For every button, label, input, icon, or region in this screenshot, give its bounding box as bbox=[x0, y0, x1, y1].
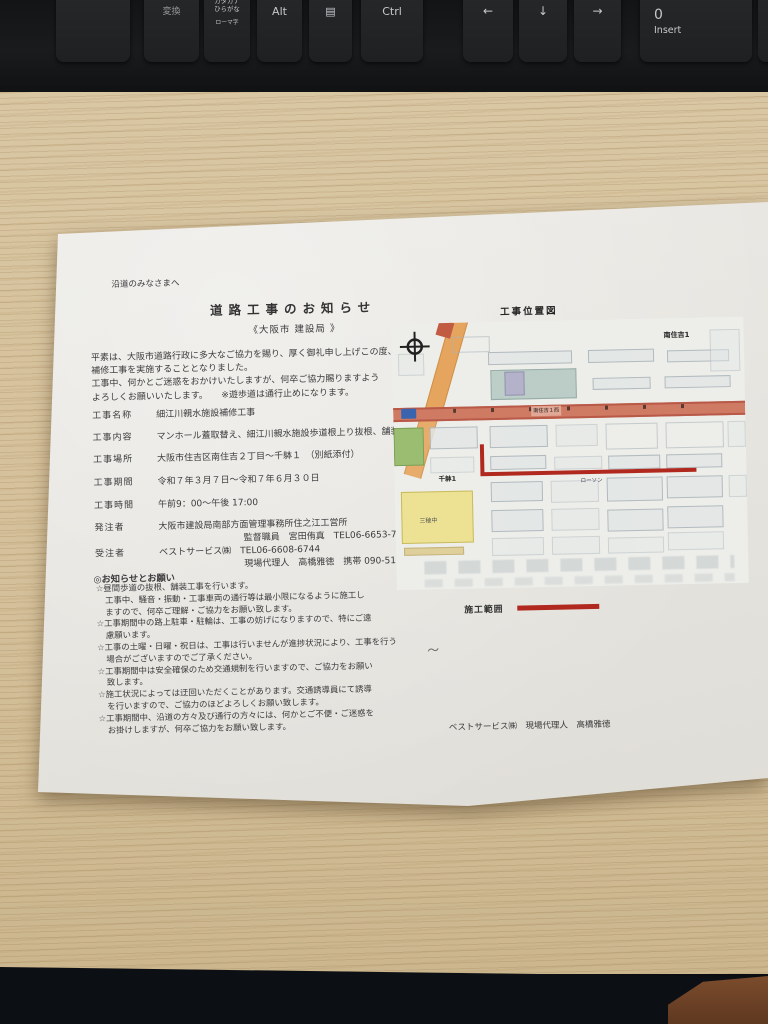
map-block bbox=[608, 455, 660, 470]
page-title: 道路工事のお知らせ bbox=[210, 296, 377, 318]
map-block bbox=[667, 475, 723, 498]
map-block bbox=[605, 423, 658, 450]
map-block bbox=[554, 456, 602, 470]
paper-content: 沿道のみなさまへ 道路工事のお知らせ 《大阪市 建設局 》 平素は、大阪市道路行… bbox=[0, 0, 768, 1024]
map-block bbox=[429, 426, 477, 449]
photo-scene: 変換 カタカナ ひらがな ローマ字 Alt ▤ Ctrl ← ↓ → 0 Ins… bbox=[0, 0, 768, 1024]
map-block bbox=[664, 375, 730, 388]
map-block bbox=[555, 424, 597, 447]
map-block bbox=[490, 455, 546, 470]
map-block bbox=[592, 377, 650, 390]
field-row: 工事期間令和７年３月７日～令和７年６月３０日 bbox=[93, 471, 319, 489]
store-label: ローソン bbox=[581, 476, 603, 484]
map-block bbox=[430, 456, 474, 473]
map-legend: 施工範囲 bbox=[464, 600, 599, 616]
pen-mark: ～ bbox=[426, 640, 441, 659]
map-block bbox=[489, 425, 547, 448]
school-label: 三稜中 bbox=[419, 515, 437, 524]
notice-paper: 沿道のみなさまへ 道路工事のお知らせ 《大阪市 建設局 》 平素は、大阪市道路行… bbox=[0, 0, 768, 1024]
notice-list: ☆昼間歩道の抜根、舗装工事を行います。 工事中、騒音・振動・工事車両の通行等は最… bbox=[96, 577, 399, 737]
salutation: 沿道のみなさまへ bbox=[111, 277, 179, 290]
map-block bbox=[404, 547, 464, 556]
map-block bbox=[588, 349, 654, 363]
map-block bbox=[668, 531, 724, 550]
field-row: 工事場所大阪市住吉区南住吉２丁目～千躰１ （別紙添付） bbox=[93, 447, 360, 466]
compass-icon bbox=[399, 331, 430, 362]
map-blurred-row bbox=[424, 555, 734, 574]
map-block bbox=[727, 421, 746, 447]
location-map: 南住吉１西 南住吉1 千躰 bbox=[391, 317, 748, 590]
map-block bbox=[729, 475, 747, 497]
map-block-complex bbox=[490, 368, 577, 400]
map-block bbox=[607, 508, 663, 531]
map-block bbox=[551, 508, 599, 531]
map-block bbox=[492, 537, 544, 556]
road-label: 南住吉１西 bbox=[531, 406, 561, 417]
map-block bbox=[607, 476, 663, 501]
map-block bbox=[608, 536, 664, 553]
field-subrow: 監督職員 宮田侑真 TEL06-6653-7633 bbox=[244, 527, 414, 544]
map-park bbox=[393, 427, 424, 466]
map-block bbox=[488, 350, 572, 365]
map-block bbox=[491, 481, 543, 502]
signature: ベストサービス㈱ 現場代理人 高橋雅徳 bbox=[449, 718, 611, 733]
district-label: 南住吉1 bbox=[664, 330, 690, 341]
map-block bbox=[491, 509, 543, 532]
map-block bbox=[452, 336, 490, 353]
legend-red-line bbox=[517, 604, 599, 610]
field-row: 工事時間午前9：00～午後 17:00 bbox=[94, 495, 258, 511]
map-blurred-row bbox=[425, 573, 735, 587]
road-shield bbox=[401, 409, 416, 419]
map-block bbox=[552, 536, 600, 555]
map-block bbox=[666, 453, 722, 468]
field-row: 工事名称細江川親水施設補修工事 bbox=[92, 405, 255, 421]
intro-paragraph: 平素は、大阪市道路行政に多大なご協力を賜り、厚く御礼申し上げこの度、 補修工事を… bbox=[91, 346, 398, 405]
field-row: 工事内容マンホール蓋取替え、細江川親水施設歩道根上り抜根、舗装工事 bbox=[92, 424, 417, 444]
district-label: 千躰1 bbox=[438, 473, 456, 483]
paper-sheet: 沿道のみなさまへ 道路工事のお知らせ 《大阪市 建設局 》 平素は、大阪市道路行… bbox=[0, 0, 768, 1024]
legend-label: 施工範囲 bbox=[464, 602, 503, 616]
map-block bbox=[709, 329, 740, 372]
map-block bbox=[667, 505, 723, 528]
map-block-tower bbox=[504, 371, 524, 395]
construction-line-vertical bbox=[480, 444, 484, 475]
issuer: 《大阪市 建設局 》 bbox=[248, 320, 340, 336]
map-block bbox=[665, 421, 724, 448]
map-title: 工事位置図 bbox=[500, 303, 558, 318]
